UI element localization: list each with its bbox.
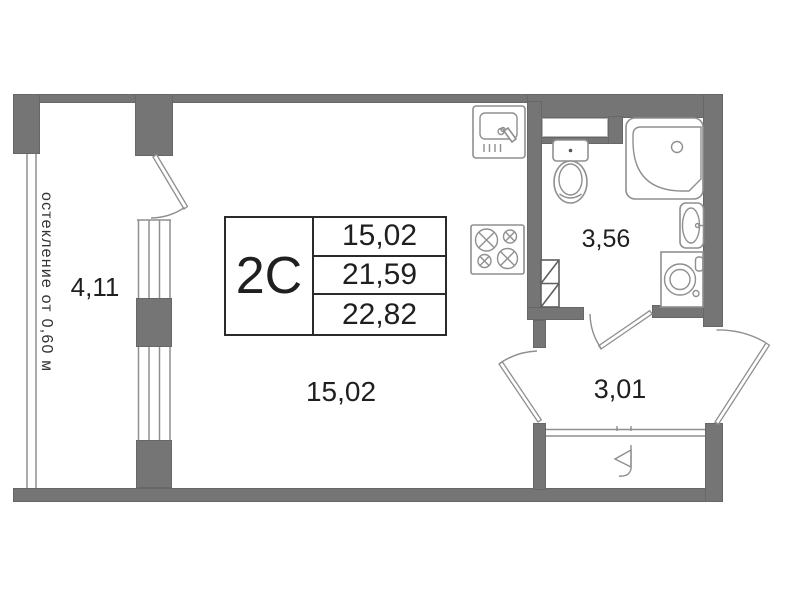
washing-machine-icon <box>661 252 703 307</box>
stove-icon <box>471 225 524 274</box>
corner-bathtub-icon <box>626 118 703 199</box>
vent-duct-icon <box>541 260 559 307</box>
apartment-stamp: 2С 15,02 21,59 22,82 <box>224 216 447 336</box>
entrance-door <box>715 330 769 424</box>
kitchen-sink-icon <box>473 106 525 158</box>
entry-door-symbol-icon <box>615 445 631 476</box>
unit-type-label: 2С <box>226 218 314 334</box>
washbasin-icon <box>680 203 704 248</box>
toilet-icon <box>553 140 588 203</box>
balcony-door <box>151 155 188 219</box>
stamp-area-row-3: 22,82 <box>314 295 445 334</box>
balcony-glazing-line <box>27 154 36 488</box>
room-hall-door <box>499 351 541 422</box>
bathroom-door <box>590 311 652 349</box>
hallway-area-label: 3,01 <box>570 374 670 405</box>
living-room-area-label: 15,02 <box>291 376 391 408</box>
bathroom-area-label: 3,56 <box>566 225 646 254</box>
balcony-area-label: 4,11 <box>55 272 135 303</box>
stamp-area-row-2: 21,59 <box>314 257 445 296</box>
vestibule-threshold-line <box>546 426 705 436</box>
bathroom-niche <box>543 119 608 137</box>
floor-plan: остекление от 0,60 м 4,11 15,02 3,56 3,0… <box>0 0 799 600</box>
stamp-area-row-1: 15,02 <box>314 218 445 257</box>
glazing-note: остекление от 0,60 м <box>37 192 55 417</box>
balcony-window <box>137 220 171 440</box>
